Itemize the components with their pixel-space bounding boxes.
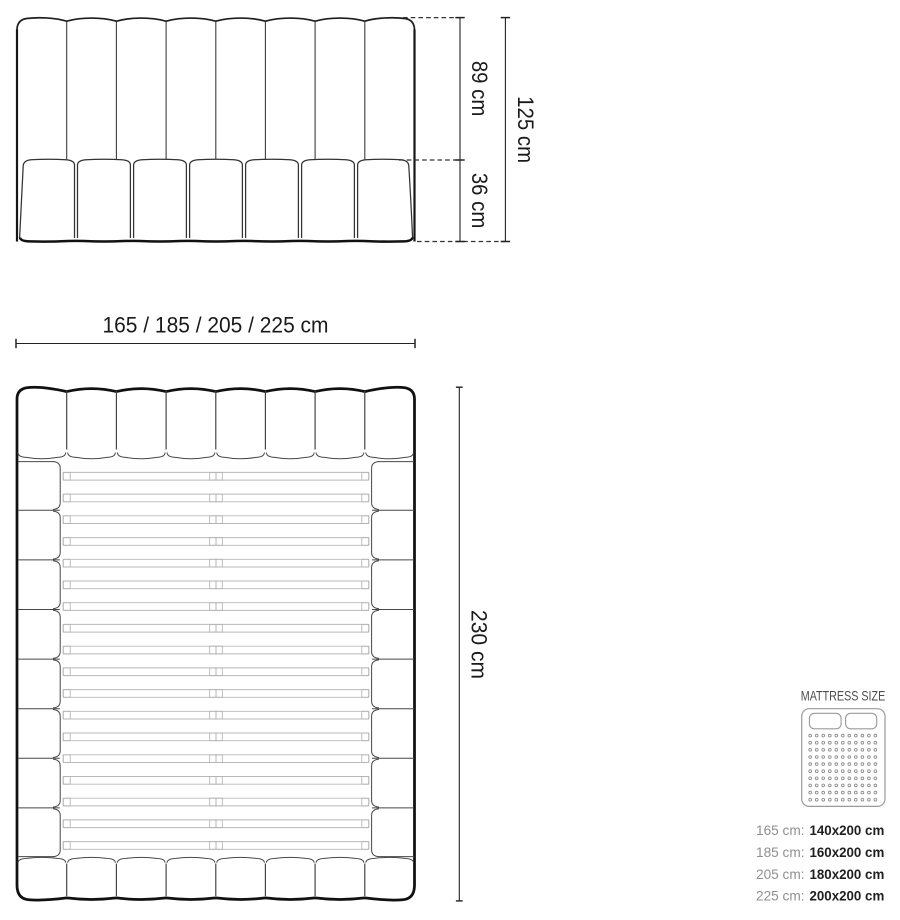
svg-text:MATTRESS SIZE: MATTRESS SIZE [801, 688, 886, 703]
svg-text:230 cm: 230 cm [466, 610, 491, 679]
svg-text:185 cm:: 185 cm: [756, 845, 805, 860]
svg-text:180x200 cm: 180x200 cm [810, 867, 885, 882]
svg-text:205 cm:: 205 cm: [756, 867, 805, 882]
svg-text:200x200 cm: 200x200 cm [810, 889, 885, 904]
svg-text:125 cm: 125 cm [513, 96, 538, 163]
svg-text:165 / 185 / 205 / 225 cm: 165 / 185 / 205 / 225 cm [103, 313, 329, 338]
svg-text:165 cm:: 165 cm: [756, 823, 805, 838]
svg-text:89 cm: 89 cm [467, 61, 492, 117]
svg-text:140x200 cm: 140x200 cm [810, 823, 885, 838]
svg-text:225 cm:: 225 cm: [756, 889, 805, 904]
svg-text:36 cm: 36 cm [467, 173, 492, 229]
svg-text:160x200 cm: 160x200 cm [810, 845, 885, 860]
